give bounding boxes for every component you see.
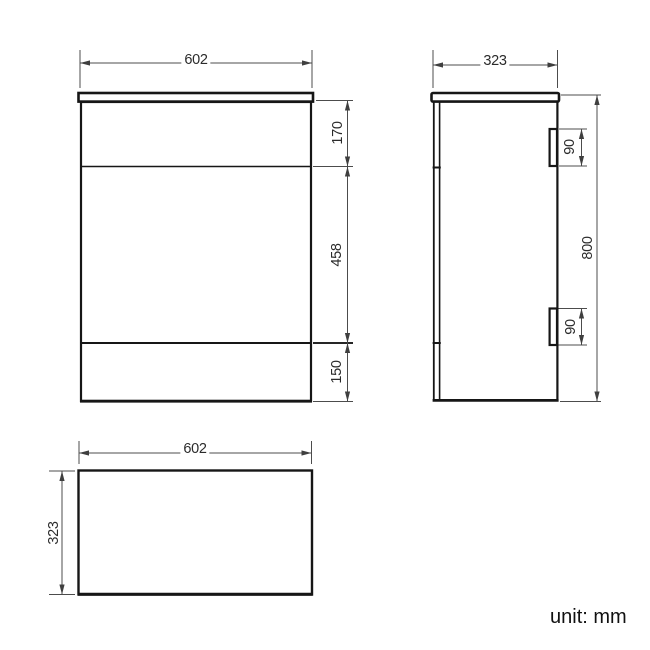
unit-note: unit: mm <box>550 607 627 627</box>
side-countertop <box>432 93 560 102</box>
front-countertop <box>79 93 314 102</box>
hinge-bottom-dim-label: 90 <box>564 319 579 335</box>
hinge-top-dim-label: 90 <box>563 139 578 155</box>
technical-drawing-page: 602 170 458 150 323 800 90 90 602 323 un… <box>0 0 650 650</box>
front-drawer-height-dim-label: 170 <box>331 121 346 144</box>
top-depth-dim-label: 323 <box>47 521 62 544</box>
drawing-canvas <box>0 0 650 650</box>
front-cabinet-body <box>81 102 311 401</box>
side-height-dim-label: 800 <box>581 236 596 259</box>
front-door-height-dim-label: 458 <box>330 243 345 266</box>
front-view <box>79 93 314 401</box>
top-width-dim-label: 602 <box>180 442 209 457</box>
top-view-outline <box>79 471 313 595</box>
side-depth-dim-label: 323 <box>480 54 509 69</box>
front-width-dim-label: 602 <box>181 53 210 68</box>
top-view <box>78 471 313 595</box>
side-view <box>432 93 560 401</box>
hinge-bottom <box>550 309 557 346</box>
hinge-top <box>550 129 557 166</box>
front-plinth-height-dim-label: 150 <box>330 360 345 383</box>
